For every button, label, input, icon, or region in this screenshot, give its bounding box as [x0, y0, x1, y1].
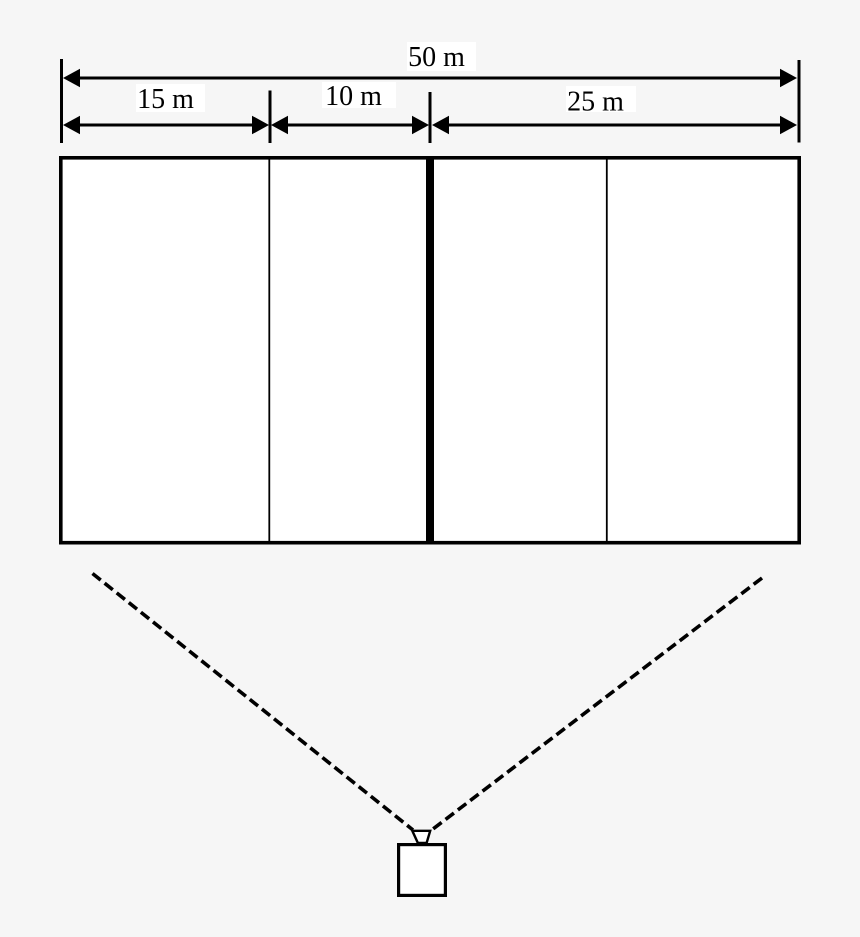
svg-text:10 m: 10 m — [325, 81, 382, 112]
svg-text:15 m: 15 m — [137, 84, 194, 115]
svg-text:25 m: 25 m — [567, 87, 624, 118]
svg-text:50 m: 50 m — [408, 42, 465, 73]
